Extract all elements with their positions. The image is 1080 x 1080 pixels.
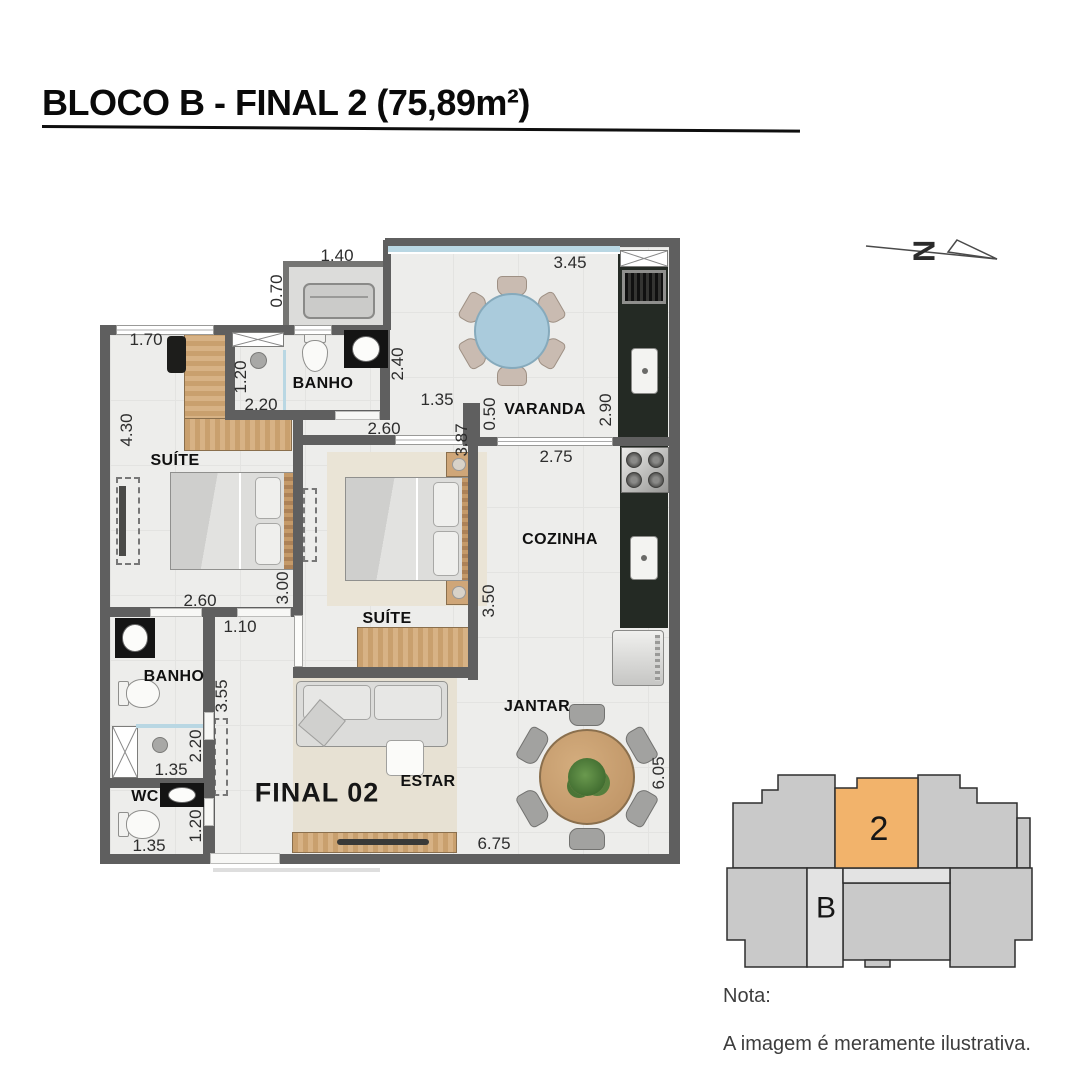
keyplan-unit-number: 2 — [870, 810, 889, 848]
dimension-label: 0.70 — [267, 274, 287, 307]
bed-blanket — [346, 478, 418, 580]
north-arrow-icon: N — [858, 224, 1008, 276]
dimension-label: 6.75 — [477, 834, 510, 854]
keyplan-left-wing — [733, 775, 835, 868]
bed-blanket — [171, 473, 241, 569]
room-label-wc: WC — [131, 788, 158, 806]
dimension-label: 3.50 — [479, 584, 499, 617]
room-label-suite1: SUÍTE — [150, 452, 199, 470]
shower2-glass — [136, 724, 203, 728]
suite1-desk-chair — [167, 336, 186, 373]
keyplan-bottom-center-block — [843, 883, 950, 960]
wall-right — [669, 238, 680, 864]
entry-step — [213, 868, 380, 872]
north-label: N — [907, 240, 942, 262]
bed-pillow — [255, 523, 281, 565]
note-text: A imagem é meramente ilustrativa. — [723, 1033, 1031, 1056]
room-label-jantar: JANTAR — [504, 698, 570, 716]
stove-icon — [621, 447, 669, 493]
building-key-plan: 2 B — [720, 765, 1036, 975]
entry-door-opening — [210, 853, 280, 864]
suite1-wardrobe-vertical — [184, 330, 230, 420]
room-label-banho1: BANHO — [293, 375, 354, 393]
sofa-cushion — [374, 685, 442, 720]
suite2-door-leaf — [294, 615, 303, 667]
suite2-bed — [345, 477, 472, 581]
sofa — [296, 681, 448, 747]
dimension-label: 1.10 — [223, 617, 256, 637]
suite2-dashed-projection — [303, 488, 317, 562]
shaft-box — [620, 250, 668, 267]
dimension-label: 2.40 — [388, 347, 408, 380]
bed-pillow — [433, 482, 459, 527]
fridge-icon — [612, 630, 664, 686]
banho2-sink-counter — [115, 618, 155, 658]
dimension-label: 2.90 — [596, 393, 616, 426]
keyplan-right-tab — [1017, 818, 1030, 868]
wall-bottom — [100, 854, 680, 864]
dimension-label: 3.55 — [212, 679, 232, 712]
dimension-label: 3.87 — [452, 423, 472, 456]
shower1-head-icon — [250, 352, 267, 369]
ac-condenser-unit — [303, 283, 375, 319]
hall-dashed-projection — [214, 718, 228, 796]
keyplan-right-wing — [918, 775, 1017, 868]
plant-icon — [568, 758, 606, 796]
bed-headboard — [284, 473, 293, 569]
varanda-sink — [631, 348, 658, 394]
wc-sink-counter — [160, 783, 204, 807]
dimension-label: 3.45 — [553, 253, 586, 273]
dimension-label: 2.60 — [367, 419, 400, 439]
dimension-label: 1.20 — [186, 809, 206, 842]
dimension-label: 2.20 — [186, 729, 206, 762]
varanda-table — [474, 293, 550, 369]
dimension-label: 1.35 — [132, 836, 165, 856]
suite2-wardrobe — [357, 627, 477, 668]
tv-icon — [337, 839, 429, 845]
dining-chair — [569, 828, 605, 850]
dimension-label: 4.30 — [117, 413, 137, 446]
cozinha-window — [497, 437, 613, 446]
banho1-window — [294, 325, 332, 335]
dimension-label: 1.20 — [231, 360, 251, 393]
page-title: BLOCO B - FINAL 2 (75,89m²) — [42, 82, 530, 124]
dimension-label: 2.20 — [244, 395, 277, 415]
wall-cozinha-left — [468, 446, 478, 680]
keyplan-bottom-left-block — [727, 868, 807, 967]
dimension-label: 6.05 — [649, 756, 669, 789]
title-underline — [42, 125, 800, 133]
wall-suite1-right — [293, 418, 303, 617]
keyplan-corridor-band — [843, 868, 950, 883]
suite1-wardrobe-horizontal — [184, 418, 292, 451]
room-label-cozinha: COZINHA — [522, 531, 598, 549]
keyplan-bottom-tab — [865, 960, 890, 967]
room-label-varanda: VARANDA — [504, 401, 586, 419]
room-label-estar: ESTAR — [400, 773, 455, 791]
suite1-bed — [170, 472, 294, 570]
shower1-box — [232, 332, 284, 347]
note-label: Nota: — [723, 985, 771, 1008]
dimension-label: 3.00 — [273, 571, 293, 604]
shower2-head-icon — [152, 737, 168, 753]
dimension-label: 2.75 — [539, 447, 572, 467]
suite1-projection-bar — [119, 486, 126, 556]
bed-pillow — [433, 531, 459, 576]
keyplan-block-letter: B — [816, 892, 836, 925]
dimension-label: 1.40 — [320, 246, 353, 266]
varanda-chair — [497, 366, 527, 386]
dimension-label: 1.70 — [129, 330, 162, 350]
unit-label: FINAL 02 — [255, 778, 380, 809]
banho1-toilet — [300, 332, 330, 372]
banho1-sink-counter — [344, 330, 388, 368]
shower1-glass — [283, 350, 286, 410]
side-table — [386, 740, 424, 776]
room-label-banho2: BANHO — [144, 668, 205, 686]
suite1-door-opening-b — [237, 608, 291, 617]
room-label-suite2: SUÍTE — [362, 610, 411, 628]
dimension-label: 0.50 — [480, 397, 500, 430]
shower2-box — [112, 726, 138, 778]
dining-chair — [569, 704, 605, 726]
kitchen-sink — [630, 536, 658, 580]
wall-left — [100, 325, 110, 864]
wall-suite2-bottom — [293, 667, 478, 678]
dimension-label: 1.35 — [154, 760, 187, 780]
keyplan-bottom-right-block — [950, 868, 1032, 967]
dimension-label: 1.35 — [420, 390, 453, 410]
bed-pillow — [255, 477, 281, 519]
floor-plan-page: BLOCO B - FINAL 2 (75,89m²) N — [0, 0, 1080, 1080]
grill-icon — [622, 270, 666, 304]
dimension-label: 2.60 — [183, 591, 216, 611]
